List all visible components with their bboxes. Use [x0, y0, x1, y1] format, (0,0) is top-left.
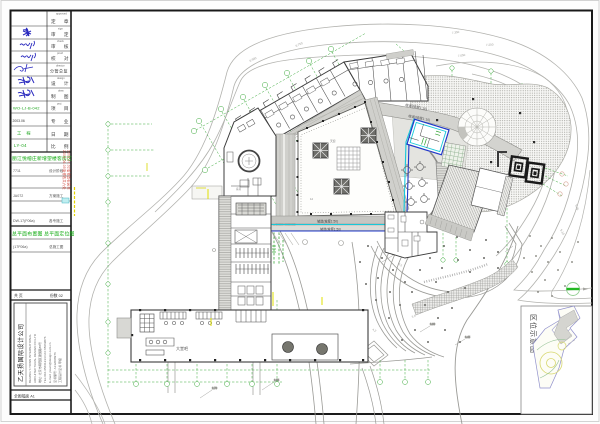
svg-text:工程设计证书 甲级: 工程设计证书 甲级	[57, 358, 62, 383]
svg-text:draw: draw	[58, 89, 64, 93]
svg-text:E-mail: ytown@design.com.cn: E-mail: ytown@design.com.cn	[48, 342, 52, 383]
svg-text:分管总监: 分管总监	[50, 68, 68, 74]
svg-text:审 定: 审 定	[51, 31, 72, 38]
svg-text:design: design	[57, 76, 65, 80]
svg-text:proof: proof	[57, 51, 63, 55]
svg-text:制 图: 制 图	[51, 93, 72, 100]
svg-text:ARCHITECTURAL DESIGN CO.LTD: ARCHITECTURAL DESIGN CO.LTD	[33, 333, 37, 383]
svg-text:2003.06: 2003.06	[13, 119, 25, 123]
svg-text:2.70: 2.70	[212, 386, 218, 390]
svg-text:LY-04: LY-04	[14, 143, 27, 148]
svg-text:sign: sign	[58, 27, 63, 31]
svg-text:比 例: 比 例	[51, 143, 72, 150]
svg-text:12: 12	[310, 197, 314, 201]
svg-text:TEL:010-65661234 FAX:65669876: TEL:010-65661234 FAX:65669876	[43, 336, 47, 383]
svg-text:7.200: 7.200	[486, 42, 494, 47]
svg-text:方案施工: 方案施工	[49, 193, 64, 198]
svg-text:库房: 库房	[236, 187, 242, 191]
svg-text:2003.06.05版修改共六处: 2003.06.05版修改共六处	[62, 150, 67, 190]
svg-text:审 核: 审 核	[51, 43, 72, 50]
svg-text:2003.07.02版修改标高共: 2003.07.02版修改标高共	[67, 150, 72, 190]
svg-text:各专施工: 各专施工	[49, 218, 64, 223]
svg-text:天窗: 天窗	[330, 139, 336, 143]
svg-text:校 对: 校 对	[51, 55, 72, 62]
svg-text:DW-17(F06a): DW-17(F06a)	[13, 219, 35, 223]
svg-text:7711: 7711	[13, 169, 21, 173]
svg-text:proj: proj	[57, 102, 62, 106]
svg-text:总平面布置图 总平面定位图: 总平面布置图 总平面定位图	[12, 231, 75, 238]
svg-text:3.60: 3.60	[430, 322, 436, 326]
svg-text:director: director	[56, 64, 65, 68]
svg-text:全图幅面 A1: 全图幅面 A1	[14, 394, 35, 399]
svg-text:地址: 北京市朝阳区建国路88号: 地址: 北京市朝阳区建国路88号	[37, 342, 42, 383]
svg-text:大堂吧: 大堂吧	[176, 345, 188, 351]
svg-text:份数 02: 份数 02	[50, 293, 63, 298]
svg-text:JA072: JA072	[13, 194, 23, 198]
svg-text:证书编号: A132008976: 证书编号: A132008976	[52, 352, 57, 383]
svg-text:工 程: 工 程	[17, 130, 33, 137]
svg-text:专 业: 专 业	[51, 118, 72, 125]
svg-text:(17F06a): (17F06a)	[13, 245, 28, 249]
svg-text:定 章: 定 章	[51, 18, 72, 25]
svg-text:坡道(坡度1:50): 坡道(坡度1:50)	[317, 219, 338, 224]
svg-text:设 计: 设 计	[51, 80, 72, 87]
svg-text:3.45: 3.45	[465, 335, 471, 339]
svg-text:approved: approved	[56, 12, 67, 16]
svg-text:共 页: 共 页	[14, 293, 23, 298]
svg-text:设计阶段: 设计阶段	[49, 168, 64, 173]
svg-text:check: check	[57, 39, 64, 43]
svg-text:BEIJING Y-TOWN INTERNATIONAL: BEIJING Y-TOWN INTERNATIONAL	[28, 334, 32, 383]
svg-text:WO-LJ-B-042: WO-LJ-B-042	[13, 106, 40, 111]
svg-text:总施工图: 总施工图	[49, 244, 64, 249]
svg-text:乙天扬国际设计公司: 乙天扬国际设计公司	[17, 323, 25, 382]
